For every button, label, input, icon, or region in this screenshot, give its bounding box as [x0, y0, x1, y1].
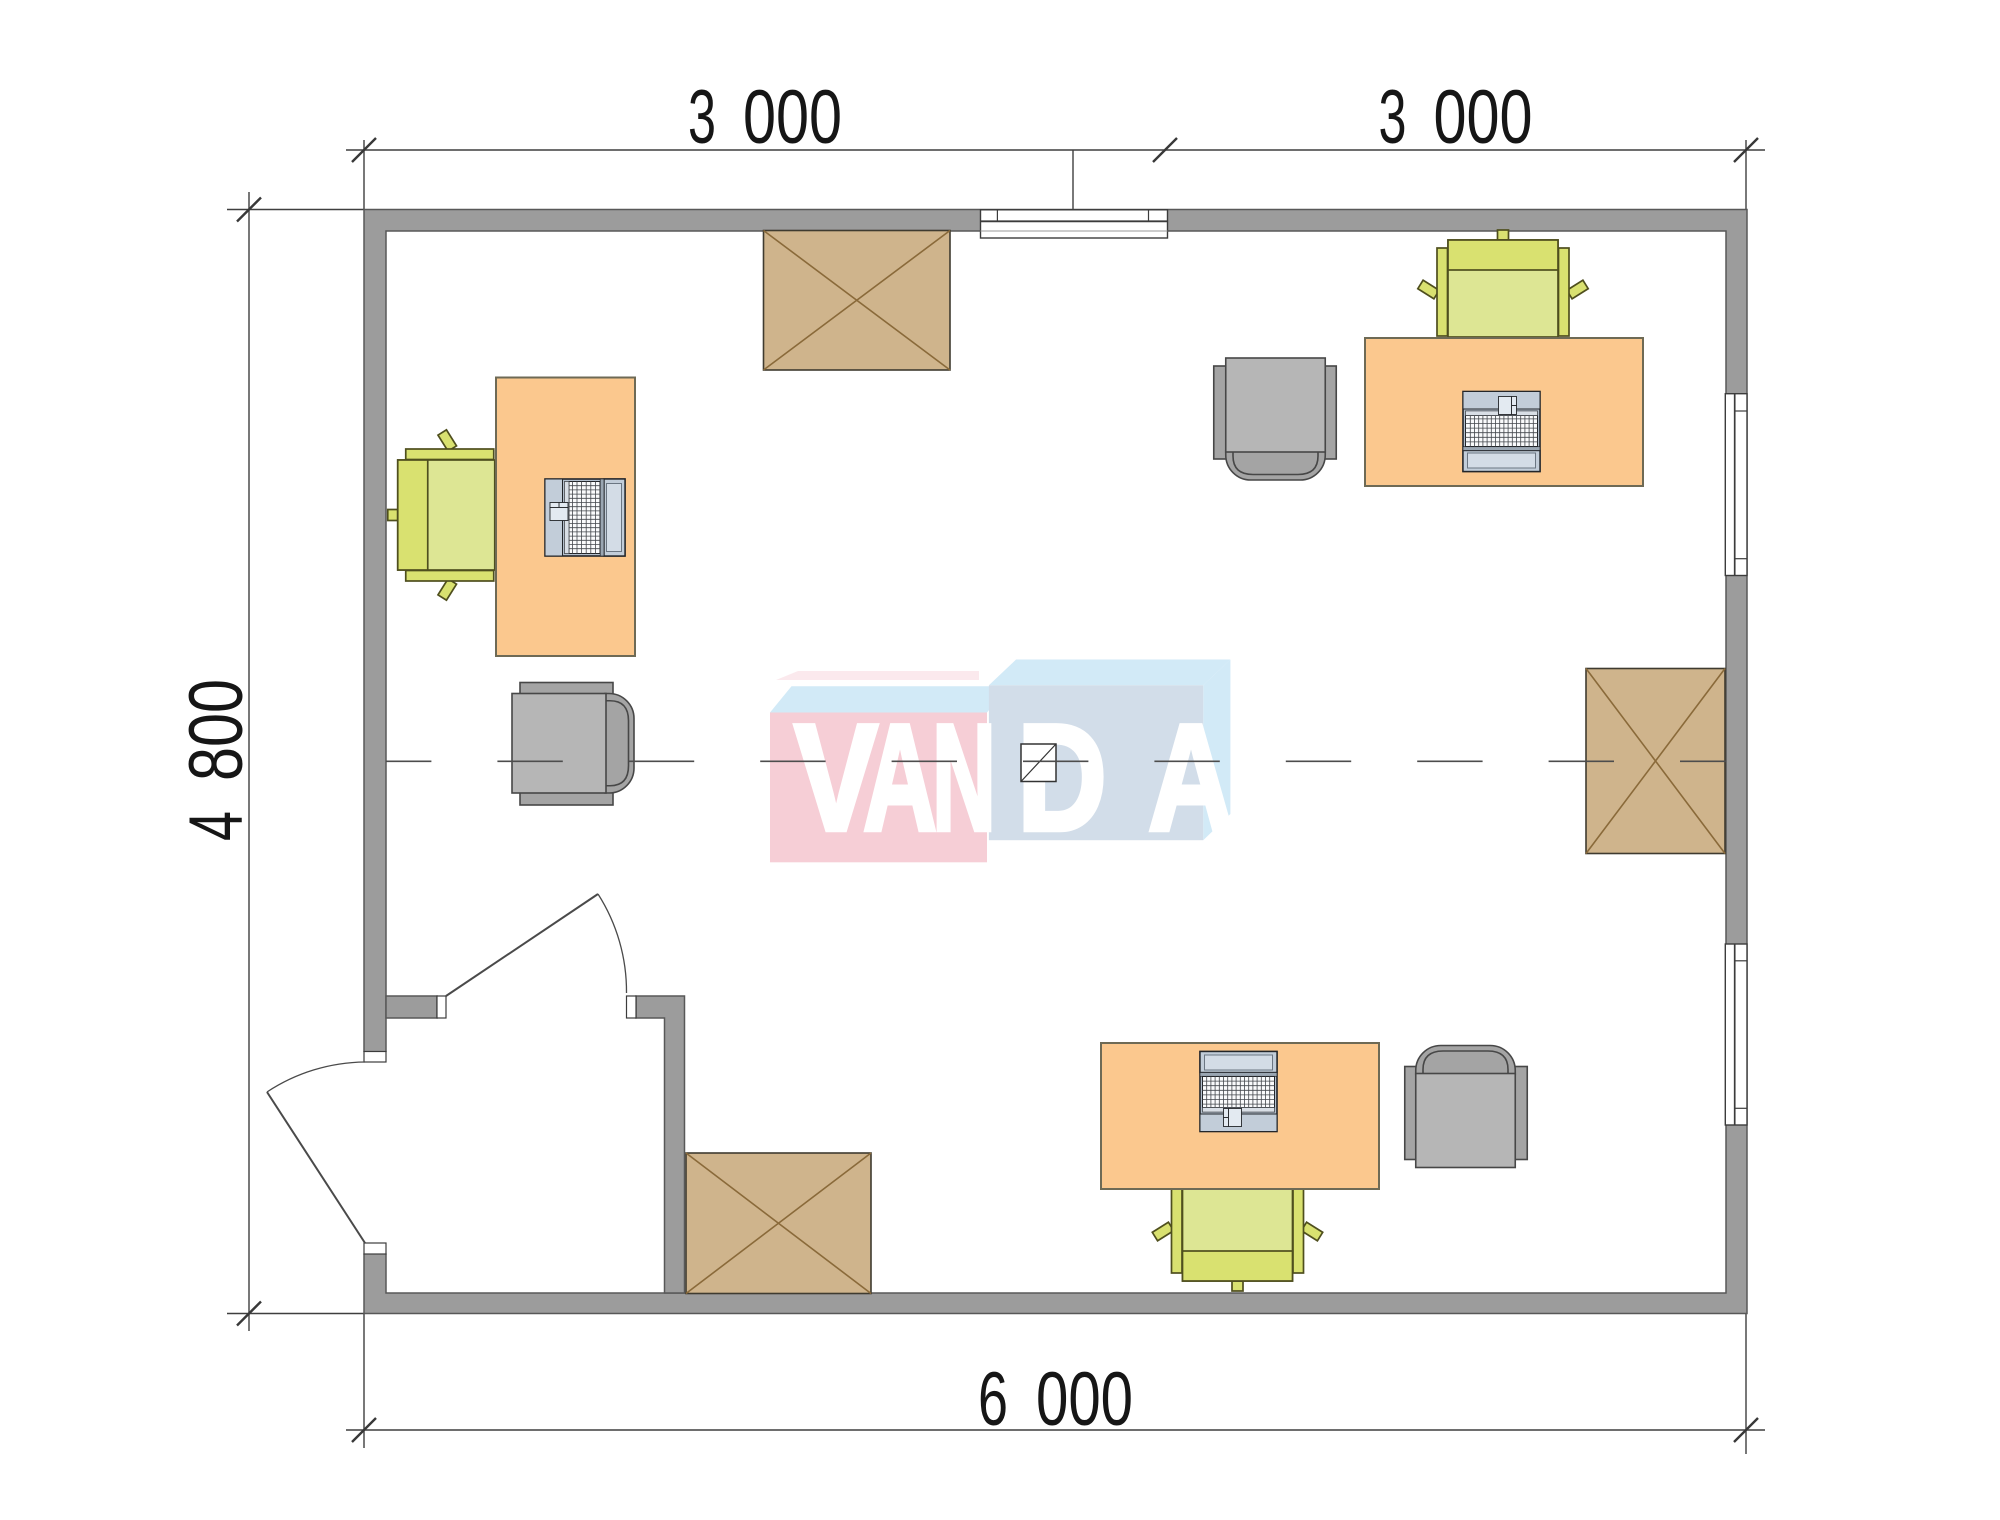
svg-text:000: 000 — [1434, 75, 1533, 160]
svg-text:A: A — [1148, 693, 1234, 863]
svg-text:A: A — [863, 693, 937, 863]
svg-text:3: 3 — [1379, 75, 1407, 160]
svg-text:800: 800 — [174, 679, 259, 781]
svg-text:4: 4 — [174, 811, 259, 841]
svg-text:3: 3 — [688, 75, 716, 160]
svg-text:000: 000 — [1036, 1357, 1133, 1442]
svg-text:000: 000 — [743, 75, 842, 160]
svg-text:N: N — [932, 693, 996, 863]
svg-text:6: 6 — [978, 1357, 1008, 1442]
